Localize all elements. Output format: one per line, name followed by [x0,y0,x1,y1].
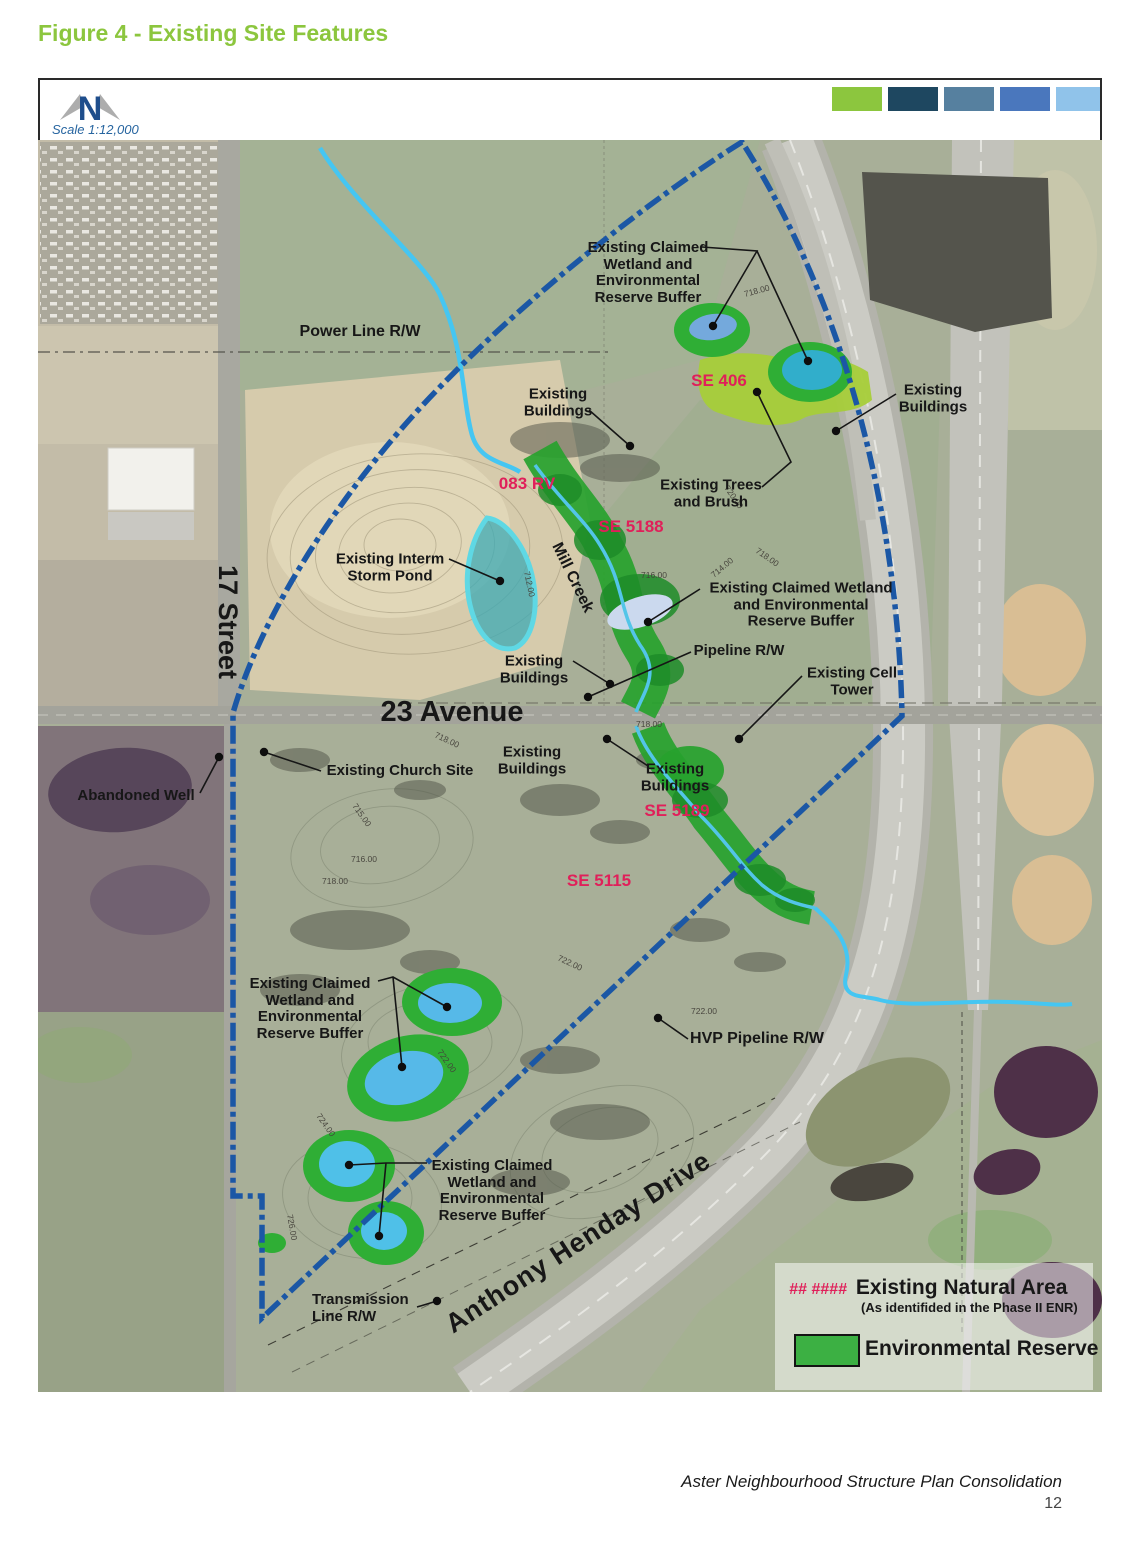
leader-dot [584,693,592,701]
map-color-swatch-4 [1000,87,1050,111]
legend-environmental-reserve-swatch [794,1334,860,1367]
leader-dot [345,1161,353,1169]
leader-dot [398,1063,406,1071]
label-23-avenue: 23 Avenue [381,697,524,727]
leader-dot [654,1014,662,1022]
leader-dot [832,427,840,435]
leader-dot [753,388,761,396]
label-wetland-buffer-sw: Existing Claimed Wetland and Environment… [250,976,371,1042]
leader-dot [375,1232,383,1240]
svg-text:N: N [78,90,103,126]
label-se-5115: SE 5115 [567,873,631,890]
page-number: 12 [681,1495,1062,1513]
document-title: Aster Neighbourhood Structure Plan Conso… [681,1472,1062,1492]
label-existing-buildings-3: Existing Buildings [500,654,568,687]
label-transmission-line-rw: Transmission Line R/W [312,1292,409,1325]
label-083-rv: 083 RV [499,476,555,493]
label-power-line-rw: Power Line R/W [300,324,421,341]
leader-dot [644,618,652,626]
label-trees-and-brush: Existing Trees and Brush [660,478,762,511]
contour-elevation-label: 722.00 [691,1006,717,1016]
label-17-street: 17 Street [214,565,242,679]
leader-dot [804,357,812,365]
map-color-swatch-2 [888,87,938,111]
fields-layer [38,140,1102,1392]
label-cell-tower: Existing Cell Tower [807,666,897,699]
legend-natural-area-label: Existing Natural Area [856,1276,1068,1299]
leader-dot [260,748,268,756]
contour-elevation-label: 716.00 [641,570,667,580]
label-interm-storm-pond: Existing Interm Storm Pond [336,552,444,585]
north-arrow-icon: N [58,86,122,126]
leader-dot [496,577,504,585]
label-hvp-pipeline-rw: HVP Pipeline R/W [690,1031,824,1048]
leader-dot [709,322,717,330]
label-wetland-buffer-top: Existing Claimed Wetland and Environment… [588,240,709,306]
label-pipeline-rw: Pipeline R/W [694,643,785,660]
label-wetland-buffer-s: Existing Claimed Wetland and Environment… [432,1158,553,1224]
map-color-swatch-3 [944,87,994,111]
leader-dot [443,1003,451,1011]
label-existing-buildings-4: Existing Buildings [498,745,566,778]
legend-natural-area-code: ## #### [789,1281,847,1298]
label-se-5188: SE 5188 [598,519,663,536]
contour-elevation-label: 718.00 [322,876,348,886]
aerial-map-image: 718.00718.00716.00714.00712.00720.00718.… [38,140,1102,1392]
page-footer: Aster Neighbourhood Structure Plan Conso… [681,1472,1062,1513]
label-existing-buildings-1: Existing Buildings [524,387,592,420]
figure-title: Figure 4 - Existing Site Features [38,20,388,47]
label-abandoned-well: Abandoned Well [77,788,194,805]
map-color-swatch-5 [1056,87,1100,111]
leader-dot [433,1297,441,1305]
legend-environmental-reserve-label: Environmental Reserve [865,1337,1098,1360]
scale-label: Scale 1:12,000 [52,122,139,137]
contour-elevation-label: 716.00 [351,854,377,864]
map-color-key [832,87,1100,111]
label-se-5189: SE 5189 [644,803,709,820]
leader-dot [603,735,611,743]
label-wetland-buffer-mid: Existing Claimed Wetland and Environment… [709,580,892,630]
label-existing-buildings-5: Existing Buildings [641,762,709,795]
contour-elevation-label: 718.00 [636,719,662,729]
map-color-swatch-1 [832,87,882,111]
legend: ## ####Existing Natural Area (As identif… [775,1263,1093,1390]
leader-dot [215,753,223,761]
leader-dot [735,735,743,743]
label-existing-buildings-2: Existing Buildings [899,383,967,416]
label-church-site: Existing Church Site [327,763,474,780]
leader-dot [606,680,614,688]
leader-dot [626,442,634,450]
legend-natural-area-subtext: (As identifided in the Phase II ENR) [861,1300,1078,1315]
label-se-406: SE 406 [691,373,747,390]
